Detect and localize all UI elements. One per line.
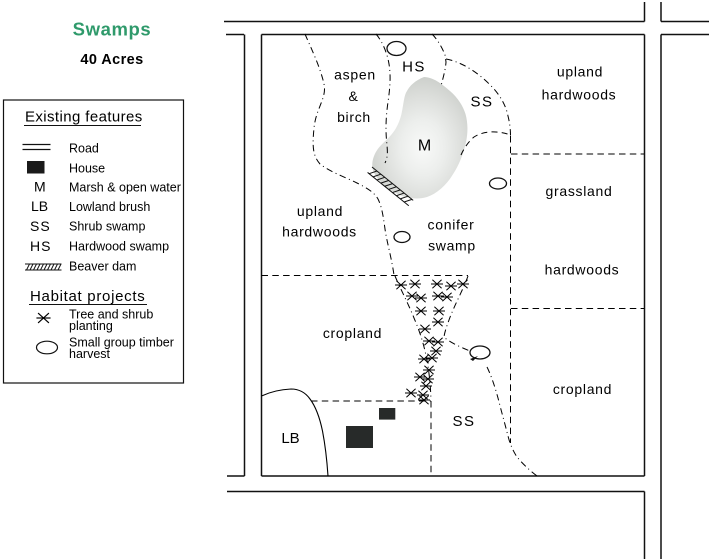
svg-text:harvest: harvest: [69, 347, 111, 361]
svg-text:SS: SS: [30, 218, 51, 234]
svg-text:House: House: [69, 162, 105, 176]
svg-text:Hardwood swamp: Hardwood swamp: [69, 240, 169, 254]
svg-text:Road: Road: [69, 142, 99, 156]
svg-text:planting: planting: [69, 319, 113, 333]
svg-text:hardwoods: hardwoods: [545, 262, 620, 278]
svg-text:Beaver dam: Beaver dam: [69, 260, 136, 274]
svg-text:LB: LB: [281, 430, 299, 447]
svg-text:HS: HS: [30, 238, 51, 254]
svg-text:Existing features: Existing features: [25, 109, 143, 126]
svg-text:grassland: grassland: [545, 183, 612, 199]
svg-text:SS: SS: [452, 413, 475, 430]
svg-text:M: M: [34, 179, 46, 195]
svg-text:birch: birch: [337, 109, 371, 125]
svg-text:Swamps: Swamps: [73, 19, 152, 40]
svg-text:upland: upland: [297, 203, 343, 219]
svg-text:aspen: aspen: [334, 67, 376, 83]
svg-text:cropland: cropland: [323, 325, 382, 341]
svg-text:swamp: swamp: [428, 238, 476, 254]
svg-text:&: &: [348, 88, 358, 104]
svg-text:conifer: conifer: [428, 217, 475, 233]
svg-text:Marsh & open water: Marsh & open water: [69, 181, 181, 195]
svg-text:SS: SS: [470, 94, 493, 111]
svg-text:cropland: cropland: [553, 381, 612, 397]
svg-text:Shrub swamp: Shrub swamp: [69, 220, 145, 234]
svg-text:40 Acres: 40 Acres: [80, 52, 143, 68]
svg-text:LB: LB: [31, 198, 48, 214]
svg-text:hardwoods: hardwoods: [282, 224, 357, 240]
svg-text:Habitat projects: Habitat projects: [30, 288, 145, 305]
svg-text:M: M: [418, 138, 431, 155]
svg-text:HS: HS: [402, 59, 426, 76]
svg-text:hardwoods: hardwoods: [542, 87, 617, 103]
svg-text:upland: upland: [557, 64, 603, 80]
svg-text:Lowland brush: Lowland brush: [69, 200, 150, 214]
